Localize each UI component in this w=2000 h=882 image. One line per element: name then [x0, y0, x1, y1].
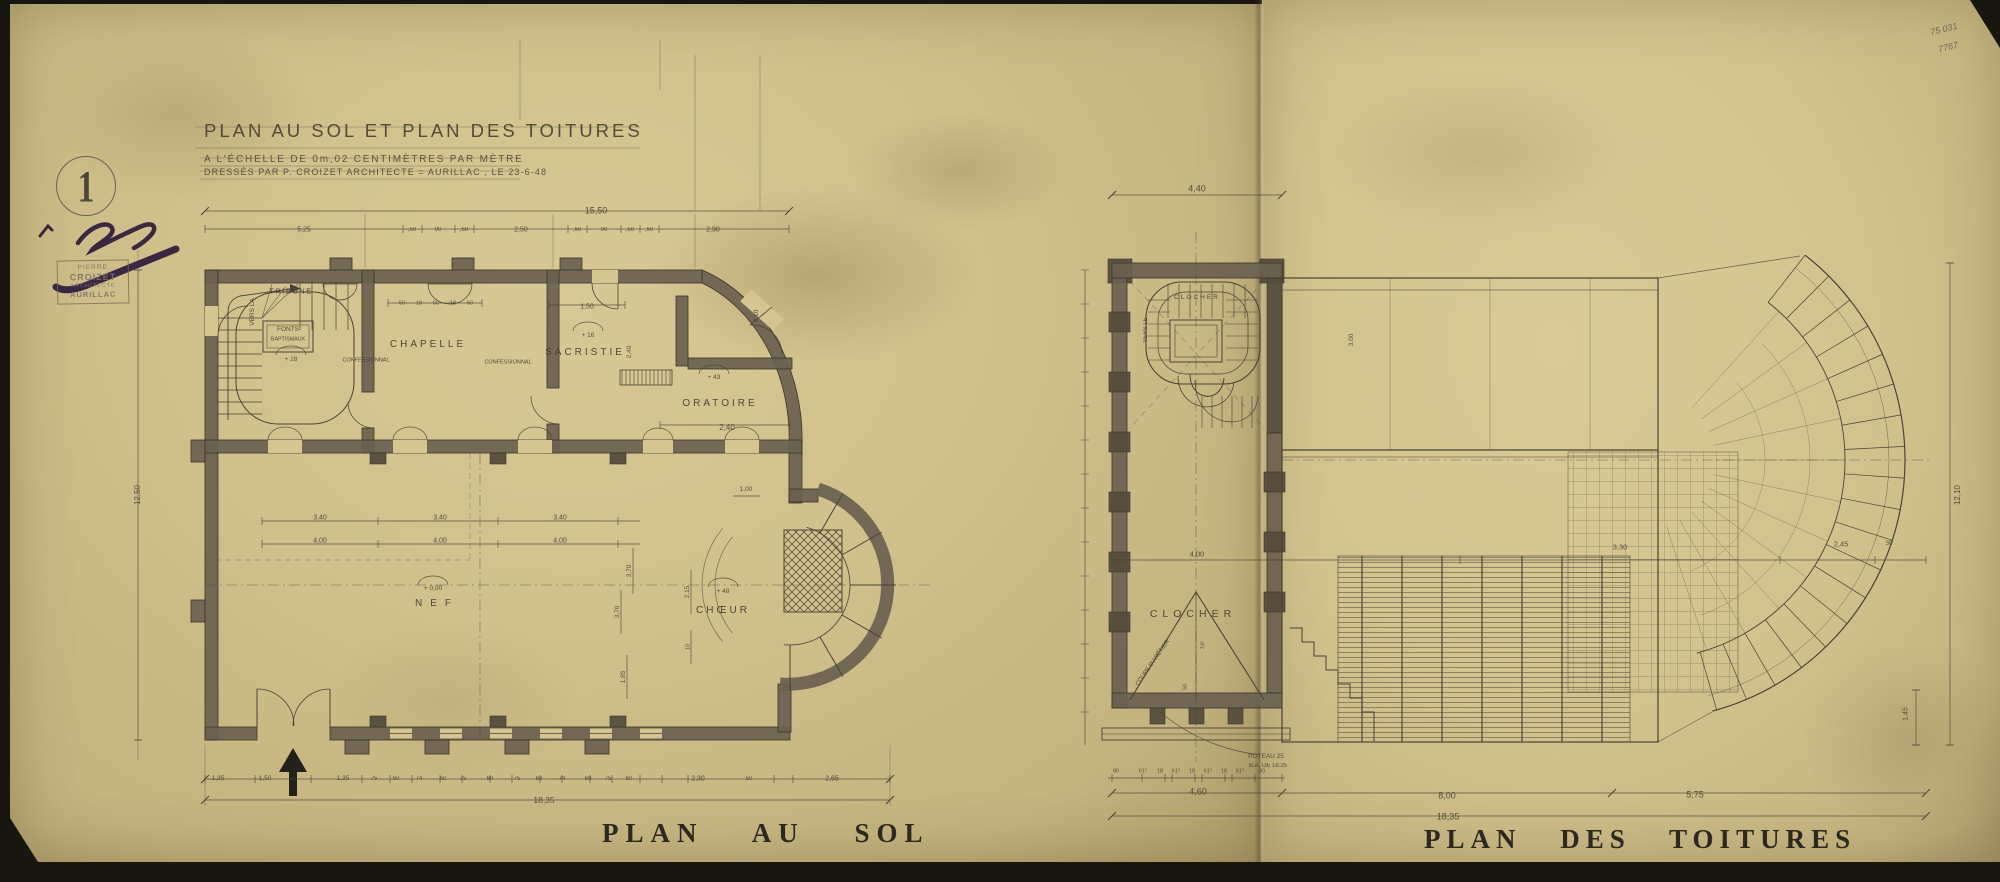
sheet-number-badge: 1: [56, 156, 116, 216]
stamp-line-2: CROIZET: [60, 272, 126, 284]
page-title: PLAN AU SOL ET PLAN DES TOITURES: [204, 120, 643, 142]
entrance-arrow: [279, 748, 307, 796]
credit-note: DRESSÉS PAR P. CROIZET ARCHITECTE = AURI…: [204, 167, 547, 177]
scale-note: A L'ÉCHELLE DE 0m,02 CENTIMÈTRES PAR MÈT…: [204, 154, 524, 165]
roof-plan-stair: [1130, 281, 1264, 428]
ground-plan-dimension-lines: [138, 211, 890, 800]
stamp-line-4: AURILLAC: [60, 290, 126, 301]
architect-stamp: PIERRE CROIZET ARCHITECTE AURILLAC: [57, 259, 130, 304]
sheet-number: 1: [78, 161, 95, 212]
ground-plan-walls: [191, 258, 888, 754]
scan-canvas: PLAN AU SOL ET PLAN DES TOITURES A L'ÉCH…: [0, 0, 2000, 882]
roof-plan-roofs: [1130, 232, 1930, 762]
tower-stair: [218, 283, 354, 424]
caption-ground-plan: PLAN AU SOL: [602, 818, 930, 849]
caption-roof-plan: PLAN DES TOITURES: [1424, 824, 1856, 855]
